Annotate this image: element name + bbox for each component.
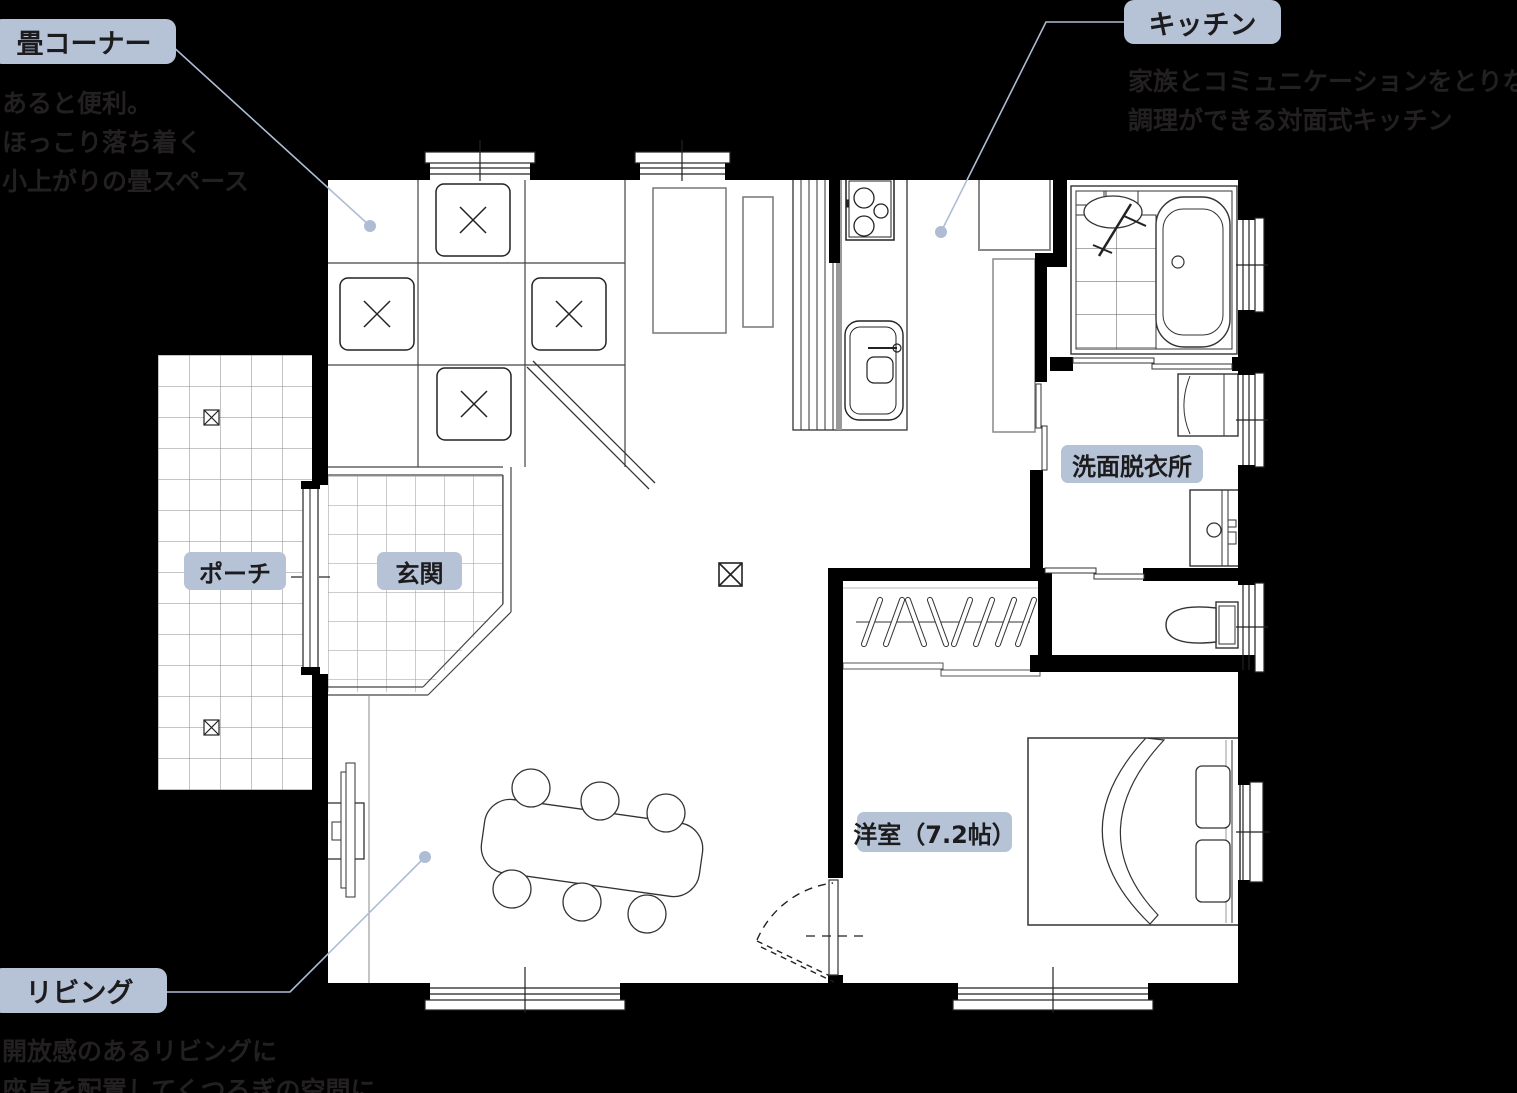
bathroom-unit bbox=[1071, 186, 1237, 354]
label-living: リビング bbox=[0, 968, 167, 1013]
note-kitchen: 家族とコミュニケーションをとりながら 調理ができる対面式キッチン bbox=[1128, 62, 1517, 140]
note-line: 座卓を配置してくつろぎの空間に bbox=[2, 1071, 376, 1093]
label-washroom: 洗面脱衣所 bbox=[1061, 445, 1203, 483]
kitchen-sink bbox=[845, 321, 903, 420]
vanity-sink bbox=[1190, 490, 1240, 566]
note-living: 開放感のあるリビングに 座卓を配置してくつろぎの空間に bbox=[2, 1032, 376, 1093]
refrigerator bbox=[979, 170, 1050, 250]
pillar-symbol bbox=[719, 563, 742, 586]
label-bedroom: 洋室（7.2帖） bbox=[857, 812, 1012, 852]
label-tatami-corner: 畳コーナー bbox=[0, 19, 176, 64]
bed bbox=[1028, 738, 1240, 925]
note-line: あると便利。 bbox=[2, 84, 249, 123]
note-line: 開放感のあるリビングに bbox=[2, 1032, 376, 1071]
stove bbox=[846, 178, 894, 240]
cupboard bbox=[993, 259, 1035, 432]
note-line: 調理ができる対面式キッチン bbox=[1128, 101, 1517, 140]
washing-machine bbox=[1178, 374, 1238, 436]
label-kitchen: キッチン bbox=[1124, 0, 1281, 44]
label-entrance: 玄関 bbox=[377, 552, 462, 590]
floor-plan-page: 畳コーナー キッチン 洗面脱衣所 ポーチ 玄関 洋室（7.2帖） リビング ある… bbox=[0, 0, 1517, 1093]
note-line: 家族とコミュニケーションをとりながら bbox=[1128, 62, 1517, 101]
label-porch: ポーチ bbox=[184, 552, 286, 590]
note-line: 小上がりの畳スペース bbox=[2, 162, 249, 201]
note-tatami-corner: あると便利。 ほっこり落ち着く 小上がりの畳スペース bbox=[2, 84, 249, 201]
note-line: ほっこり落ち着く bbox=[2, 123, 249, 162]
ldk-cabinets bbox=[653, 188, 773, 333]
